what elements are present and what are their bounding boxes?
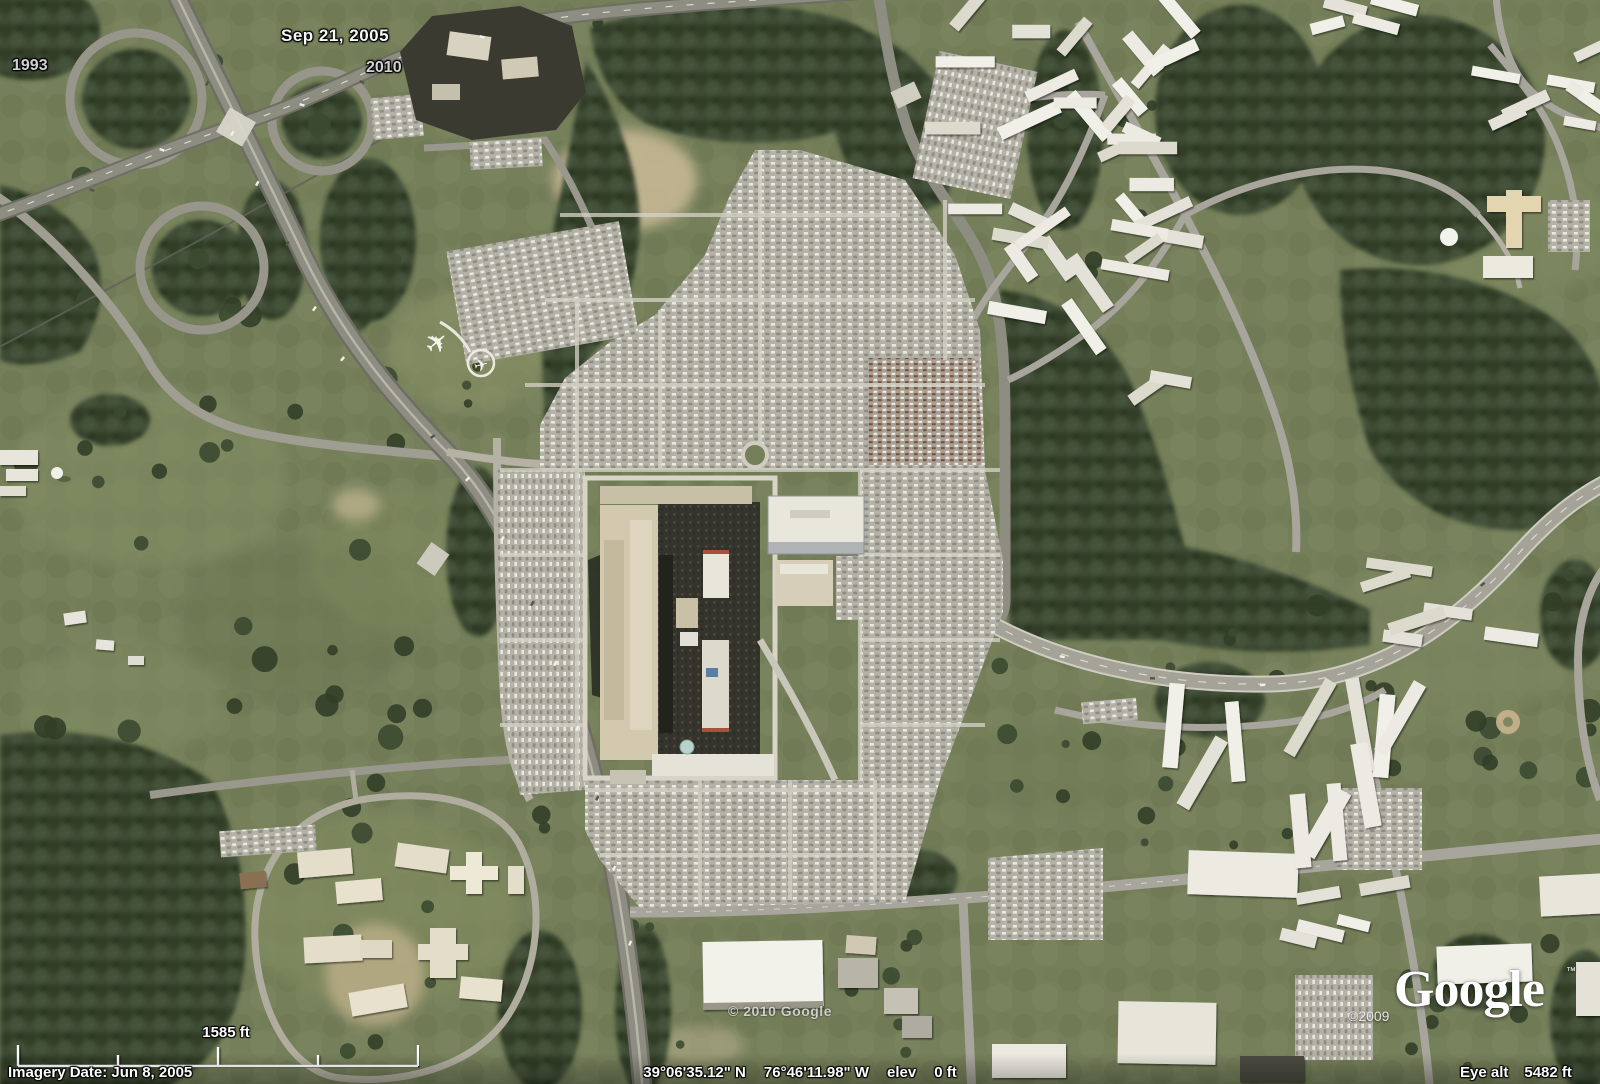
tree — [464, 399, 473, 408]
tree — [997, 724, 1017, 744]
tree — [1543, 592, 1562, 611]
tree — [390, 254, 401, 265]
vehicle — [1260, 684, 1265, 687]
tree — [287, 404, 303, 420]
tree — [367, 774, 386, 793]
elevation-value: 0 ft — [934, 1064, 957, 1081]
tree — [532, 806, 551, 825]
tree — [1520, 761, 1538, 779]
eye-altitude-readout: Eye alt 5482 ft — [1452, 1064, 1580, 1081]
tree — [1365, 680, 1376, 691]
tree — [378, 724, 403, 749]
tree — [92, 476, 105, 489]
tree — [221, 439, 234, 452]
tree — [907, 930, 923, 946]
eye-alt-label: Eye alt — [1460, 1064, 1508, 1081]
residential-building — [1054, 98, 1097, 109]
latitude-value: 39°06'35.12" N — [643, 1064, 746, 1081]
tree — [327, 645, 338, 656]
satellite-map: ✈ ✈ — [0, 0, 1600, 1084]
tree — [900, 1047, 911, 1058]
scale-bar: 1585 ft — [16, 1024, 420, 1068]
tree — [134, 536, 149, 551]
trademark-symbol: ™ — [1566, 966, 1576, 977]
tree — [152, 464, 167, 479]
tree — [1229, 840, 1238, 849]
tree — [1147, 100, 1157, 110]
tree — [1082, 731, 1101, 750]
tree — [645, 922, 654, 931]
tree — [1056, 789, 1070, 803]
tree — [1158, 776, 1173, 791]
tree — [113, 406, 126, 419]
timeline-start-year: 1993 — [12, 57, 48, 75]
residential-building — [1012, 25, 1050, 39]
traffic-circle — [743, 443, 767, 467]
residential-building — [1118, 142, 1177, 155]
tree — [1138, 807, 1156, 825]
imagery-date-label: Imagery Date: Jun 8, 2005 — [8, 1064, 192, 1081]
tree — [188, 248, 209, 269]
residential-building — [948, 204, 1002, 215]
tree — [1540, 934, 1559, 953]
tree — [199, 442, 220, 463]
tree — [882, 967, 900, 985]
tree — [421, 900, 434, 913]
tree — [425, 977, 437, 989]
tree — [77, 440, 93, 456]
tree — [118, 720, 141, 743]
timeline-current-date: Sep 21, 2005 — [281, 26, 389, 46]
tree — [1228, 628, 1237, 637]
tree — [992, 658, 1009, 675]
water-tower — [51, 467, 63, 479]
tree — [44, 717, 66, 739]
residential-building — [1130, 178, 1174, 191]
google-logo: Google — [1394, 960, 1544, 1019]
tree — [1405, 1042, 1418, 1055]
tree — [349, 539, 371, 561]
timeline-end-year: 2010 — [366, 59, 402, 77]
scale-bar-label: 1585 ft — [156, 1024, 296, 1041]
google-logo-block: ©2009 Google ™ — [1320, 960, 1592, 1040]
tree — [1062, 740, 1070, 748]
radome — [1440, 228, 1458, 246]
longitude-value: 76°46'11.98" W — [764, 1064, 869, 1081]
tree — [1306, 595, 1328, 617]
logo-copyright: ©2009 — [1348, 1008, 1389, 1024]
eye-alt-value: 5482 ft — [1524, 1064, 1572, 1081]
tree — [234, 617, 252, 635]
tree — [325, 685, 343, 703]
residential-building — [925, 122, 981, 135]
tree — [252, 646, 278, 672]
tree — [1010, 779, 1024, 793]
tree — [1564, 569, 1576, 581]
tree — [227, 698, 243, 714]
elevation-label: elev — [887, 1064, 916, 1081]
tree — [676, 1040, 685, 1049]
google-earth-viewport[interactable]: ✈ ✈ — [0, 0, 1600, 1084]
tree — [462, 381, 471, 390]
copyright-watermark: © 2010 Google — [700, 1003, 860, 1019]
tree — [1482, 755, 1498, 771]
tree — [387, 704, 406, 723]
tree — [1282, 828, 1293, 839]
tree — [413, 699, 432, 718]
residential-building — [936, 56, 995, 67]
vehicle — [1150, 677, 1155, 680]
tree — [308, 113, 331, 136]
tree — [1141, 838, 1149, 846]
tree — [352, 823, 373, 844]
coordinates-readout: 39°06'35.12" N 76°46'11.98" W elev 0 ft — [560, 1064, 1040, 1081]
tree — [157, 108, 167, 118]
tree — [1466, 711, 1487, 732]
tree — [394, 636, 414, 656]
